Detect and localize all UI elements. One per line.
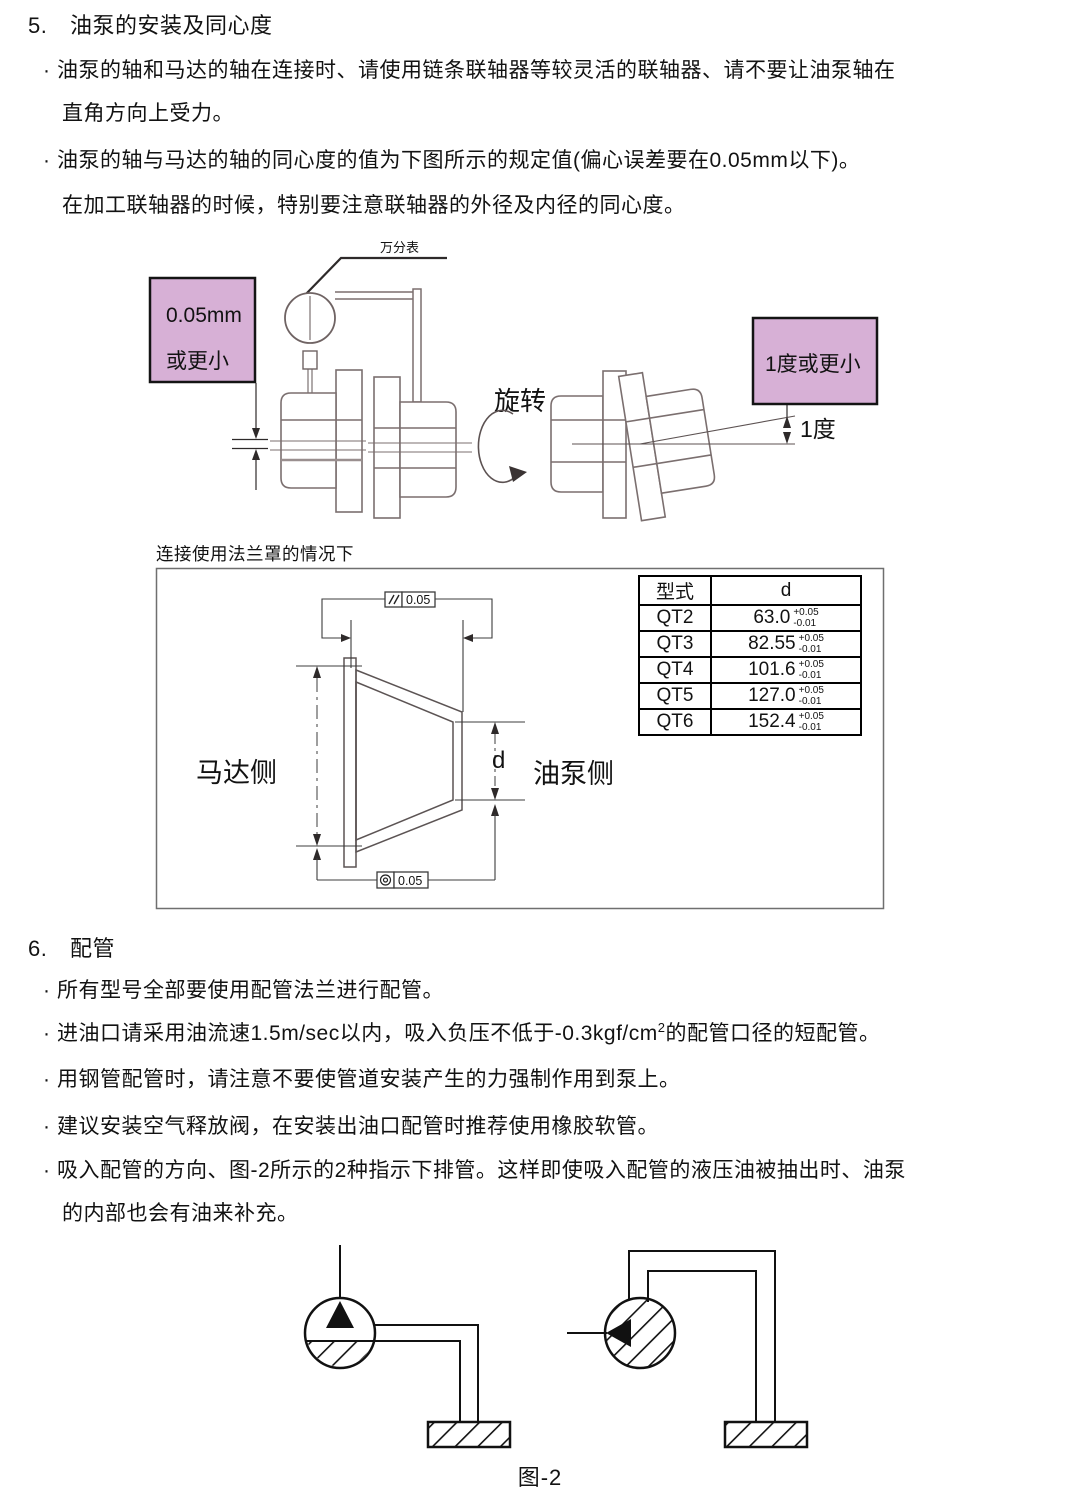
tol-plus: +0.05 <box>799 633 824 644</box>
rotate-label: 旋转 <box>494 386 546 416</box>
section6-title: 配管 <box>70 931 115 963</box>
model-cell: QT5 <box>639 683 711 709</box>
section6-heading: 6. 配管 <box>28 931 115 963</box>
tol-minus: -0.01 <box>793 618 818 629</box>
dial-indicator-label: 万分表 <box>306 240 447 294</box>
coupling-pair-aligned <box>270 370 472 518</box>
pump-symbol-top-suction <box>567 1251 807 1447</box>
tol-plus: +0.05 <box>799 659 824 670</box>
rotation-arrow: 旋转 <box>478 386 546 482</box>
coupling-pair-angled <box>551 364 720 521</box>
bullet-text: 所有型号全部要使用配管法兰进行配管。 <box>57 978 444 1003</box>
motor-side-dimension <box>296 666 362 880</box>
value-cell: 63.0+0.05-0.01 <box>711 605 861 631</box>
coupling-alignment-diagram: 万分表 0.05mm 或更小 <box>90 235 990 540</box>
col-header-d: d <box>711 576 861 605</box>
d-value: 127.0 <box>748 685 796 707</box>
bullet-text: 吸入配管的方向、图-2所示的2种指示下排管。这样即使吸入配管的液压油被抽出时、油… <box>57 1158 906 1183</box>
bullet-text: 进油口请采用油流速1.5m/sec以内，吸入负压不低于-0.3kgf/cm2的配… <box>57 1021 880 1046</box>
pipe <box>374 1325 478 1422</box>
offset-note: 0.05mm 或更小 <box>150 278 255 382</box>
tol-plus: +0.05 <box>799 711 824 722</box>
bullet-text: 油泵的轴和马达的轴在连接时、请使用链条联轴器等较灵活的联轴器、请不要让油泵轴在 <box>57 58 896 83</box>
bullet-dot: · <box>43 1114 57 1139</box>
section6-bullet-5: · 吸入配管的方向、图-2所示的2种指示下排管。这样即使吸入配管的液压油被抽出时… <box>43 1158 906 1183</box>
section5-number: 5. <box>28 13 47 39</box>
tank-block <box>725 1422 807 1447</box>
bullet-text: 建议安装空气释放阀，在安装出油口配管时推荐使用橡胶软管。 <box>57 1114 659 1139</box>
angle-label: 1度 <box>800 416 836 442</box>
section5-bullet-1: · 油泵的轴和马达的轴在连接时、请使用链条联轴器等较灵活的联轴器、请不要让油泵轴… <box>43 58 896 83</box>
section6-number: 6. <box>28 936 47 962</box>
tol-minus: -0.01 <box>799 722 824 733</box>
dial-label-text: 万分表 <box>380 240 419 255</box>
parallelism-leaders <box>322 599 492 712</box>
bullet-dot: · <box>43 978 57 1003</box>
model-cell: QT3 <box>639 631 711 657</box>
col-header-model: 型式 <box>639 576 711 605</box>
rotation-arc <box>478 410 515 482</box>
section6-bullet-1: · 所有型号全部要使用配管法兰进行配管。 <box>43 978 444 1003</box>
section5-bullet-1-cont: 直角方向上受力。 <box>62 101 234 126</box>
d-value: 152.4 <box>748 711 796 733</box>
bullet-text: 油泵的轴与马达的轴的同心度的值为下图所示的规定值(偏心误差要在0.05mm以下)… <box>57 148 860 173</box>
flange-caption: 连接使用法兰罩的情况下 <box>156 541 354 566</box>
tilted-coupling-half <box>619 364 720 521</box>
value-cell: 127.0+0.05-0.01 <box>711 683 861 709</box>
model-cell: QT4 <box>639 657 711 683</box>
table-header-row: 型式 d <box>639 576 861 605</box>
d-value: 101.6 <box>748 659 796 681</box>
bullet-dot: · <box>43 58 57 83</box>
model-cell: QT6 <box>639 709 711 735</box>
d-value: 82.55 <box>748 633 796 655</box>
tol-minus: -0.01 <box>799 696 824 707</box>
arrowhead <box>341 634 351 642</box>
bullet-dot: · <box>43 1158 57 1183</box>
bullet-dot: · <box>43 1067 57 1092</box>
section6-bullet-5-cont: 的内部也会有油来补充。 <box>62 1201 299 1226</box>
bullet-text-post: 的配管口径的短配管。 <box>665 1022 880 1045</box>
tol-plus: +0.05 <box>793 607 818 618</box>
value-cell: 101.6+0.05-0.01 <box>711 657 861 683</box>
model-cell: QT2 <box>639 605 711 631</box>
section5-heading: 5. 油泵的安装及同心度 <box>28 8 273 40</box>
angle-note-text: 1度或更小 <box>765 353 861 376</box>
dial-indicator-icon <box>285 293 335 393</box>
concentricity-tolerance: 0.05 <box>317 872 495 888</box>
section6-bullet-4: · 建议安装空气释放阀，在安装出油口配管时推荐使用橡胶软管。 <box>43 1114 659 1139</box>
table-row: QT3 82.55+0.05-0.01 <box>639 631 861 657</box>
motor-side-label: 马达侧 <box>196 758 277 788</box>
bullet-text: 用钢管配管时，请注意不要使管道安装产生的力强制作用到泵上。 <box>57 1067 681 1092</box>
arrowhead <box>463 634 473 642</box>
pump-side-dimension: d <box>455 722 525 880</box>
concentricity-value: 0.05 <box>398 874 422 888</box>
tol-minus: -0.01 <box>799 670 824 681</box>
tol-plus: +0.05 <box>799 685 824 696</box>
section6-bullet-2: · 进油口请采用油流速1.5m/sec以内，吸入负压不低于-0.3kgf/cm2… <box>43 1021 880 1046</box>
bell-housing-drawing <box>344 658 462 867</box>
tank-block <box>428 1422 510 1447</box>
section5-bullet-2: · 油泵的轴与马达的轴的同心度的值为下图所示的规定值(偏心误差要在0.05mm以… <box>43 148 860 173</box>
parallelism-tolerance: 0.05 <box>322 592 492 712</box>
angle-note: 1度或更小 <box>753 318 877 404</box>
section5-bullet-2-cont: 在加工联轴器的时候，特别要注意联轴器的外径及内径的同心度。 <box>62 193 686 218</box>
bullet-dot: · <box>43 148 57 173</box>
table-row: QT2 63.0+0.05-0.01 <box>639 605 861 631</box>
leader-line <box>306 258 447 294</box>
figure2-piping-diagram <box>250 1240 850 1470</box>
section6-bullet-3: · 用钢管配管时，请注意不要使管道安装产生的力强制作用到泵上。 <box>43 1067 681 1092</box>
value-cell: 82.55+0.05-0.01 <box>711 631 861 657</box>
offset-note-line2: 或更小 <box>166 350 229 373</box>
table-row: QT4 101.6+0.05-0.01 <box>639 657 861 683</box>
d-dim-label: d <box>492 747 505 774</box>
manual-page: { "bullet": "·", "section5": { "num": "5… <box>0 0 1080 1504</box>
tol-minus: -0.01 <box>799 644 824 655</box>
pump-side-label: 油泵侧 <box>533 759 614 789</box>
parallelism-value: 0.05 <box>406 593 430 607</box>
flange-spec-table: 型式 d QT2 63.0+0.05-0.01 QT3 82.55+0.05-0… <box>638 575 862 736</box>
bullet-text-pre: 进油口请采用油流速1.5m/sec以内，吸入负压不低于-0.3kgf/cm <box>57 1022 658 1045</box>
d-value: 63.0 <box>753 607 790 629</box>
offset-dimension <box>232 383 268 490</box>
table-row: QT5 127.0+0.05-0.01 <box>639 683 861 709</box>
bullet-dot: · <box>43 1021 57 1046</box>
offset-note-line1: 0.05mm <box>166 304 242 327</box>
table-row: QT6 152.4+0.05-0.01 <box>639 709 861 735</box>
value-cell: 152.4+0.05-0.01 <box>711 709 861 735</box>
pump-symbol-bottom-suction <box>304 1245 510 1447</box>
section5-title: 油泵的安装及同心度 <box>70 8 273 40</box>
figure2-caption: 图-2 <box>0 1460 1080 1492</box>
